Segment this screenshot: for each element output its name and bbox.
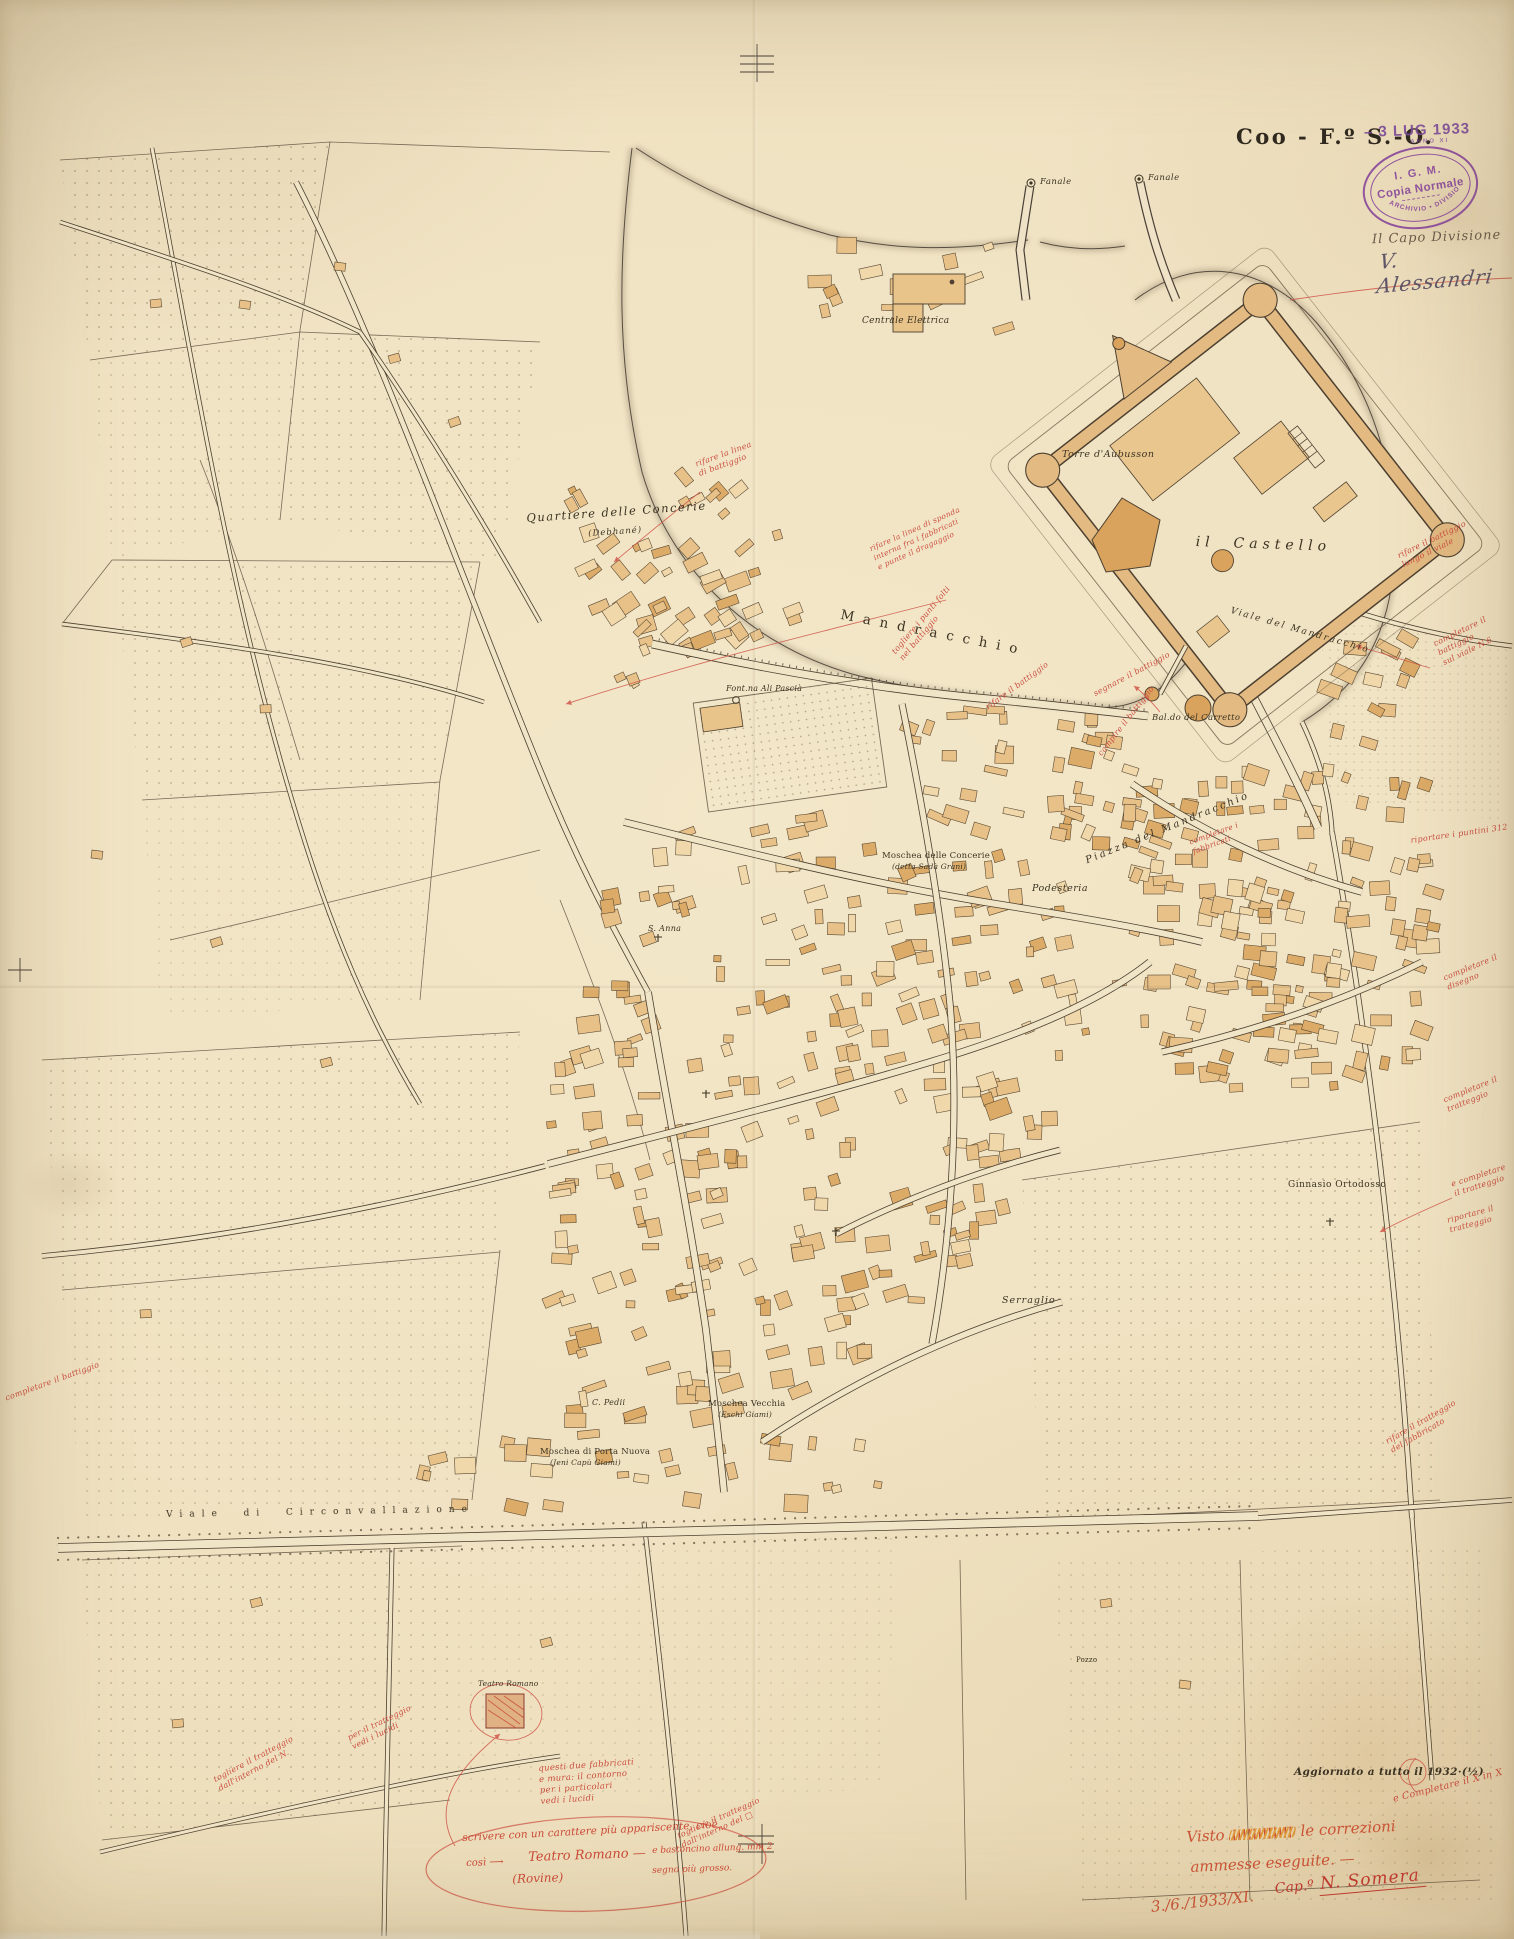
updated-note: Aggiornato a tutto il 1932·(½) — [1294, 1766, 1484, 1778]
map-label: S. Anna — [648, 924, 681, 933]
red-oval-note-text: così ⟶ — [466, 1857, 504, 1869]
map-label: Fanale — [1148, 174, 1180, 184]
map-label: Torre d'Aubusson — [1062, 450, 1155, 461]
signature-rank: Cap.º — [1274, 1878, 1314, 1897]
map-label: Moschea di Porta Nuova — [540, 1448, 650, 1458]
map-label: Moschea delle Concerie — [882, 852, 990, 862]
strikethrough-scribble — [1228, 1826, 1296, 1841]
map-label: Serraglio — [1002, 1296, 1056, 1307]
roman-theatre — [486, 1694, 524, 1728]
map-label: Pozzo — [1076, 1656, 1097, 1664]
map-label: (Eschi Giami) — [718, 1411, 772, 1420]
visto-word: Visto — [1186, 1826, 1225, 1846]
map-canvas — [0, 0, 1514, 1939]
map-label: Centrale Elettrica — [862, 316, 949, 326]
map-label: C. Pedii — [592, 1398, 625, 1407]
map-label: Font.na Ali Pascià — [726, 684, 802, 693]
map-label: Bal.do del Carretto — [1152, 714, 1240, 724]
map-label: Fanale — [1040, 178, 1072, 188]
map-label: (Jeni Capù Giami) — [550, 1459, 621, 1468]
red-annotation: questi due fabbricati e mura: il contorn… — [538, 1757, 637, 1808]
map-label: Podesteria — [1032, 884, 1088, 895]
map-label: (detta Sadà Grani) — [892, 863, 966, 872]
map-label: Teatro Romano — [478, 1680, 539, 1689]
map-sheet: Coo - F.º S.-O. – 3 LUG 1933 ANNO XI I. … — [0, 0, 1514, 1939]
map-label: Ginnasio Ortodosso — [1288, 1180, 1386, 1190]
walled-garden — [693, 678, 887, 812]
map-label: Moschea Vecchia — [708, 1400, 785, 1410]
red-oval-note-text: (Rovine) — [512, 1870, 564, 1886]
